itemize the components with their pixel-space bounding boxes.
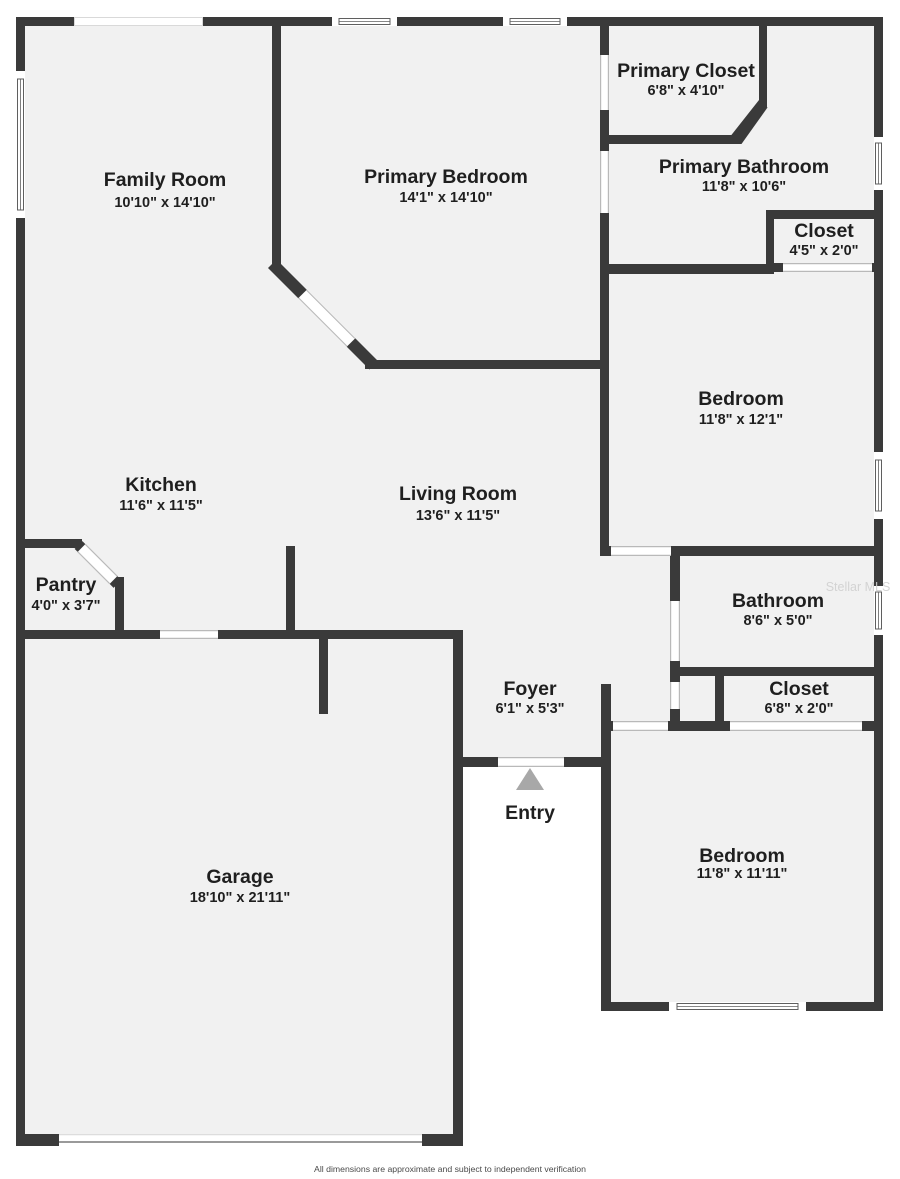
svg-text:Garage: Garage — [206, 866, 273, 888]
svg-text:Bedroom: Bedroom — [698, 388, 784, 410]
svg-text:Kitchen: Kitchen — [125, 474, 197, 496]
svg-text:10'10" x 14'10": 10'10" x 14'10" — [114, 195, 215, 211]
svg-text:Stellar MLS: Stellar MLS — [826, 580, 891, 594]
svg-text:8'6" x 5'0": 8'6" x 5'0" — [743, 613, 812, 629]
svg-text:11'8" x 10'6": 11'8" x 10'6" — [702, 179, 786, 195]
svg-text:Primary Bedroom: Primary Bedroom — [364, 166, 528, 188]
svg-text:11'8" x 12'1": 11'8" x 12'1" — [699, 412, 783, 428]
svg-text:Primary Closet: Primary Closet — [617, 60, 755, 82]
svg-text:13'6" x 11'5": 13'6" x 11'5" — [416, 508, 500, 524]
svg-text:11'6" x 11'5": 11'6" x 11'5" — [119, 498, 203, 514]
svg-text:4'5" x 2'0": 4'5" x 2'0" — [789, 243, 858, 259]
svg-text:All dimensions are approximate: All dimensions are approximate and subje… — [314, 1164, 586, 1174]
svg-text:Bathroom: Bathroom — [732, 590, 824, 612]
svg-text:Family Room: Family Room — [104, 169, 226, 191]
svg-text:Living Room: Living Room — [399, 483, 517, 505]
svg-text:6'8" x 2'0": 6'8" x 2'0" — [764, 701, 833, 717]
svg-text:6'8" x 4'10": 6'8" x 4'10" — [647, 83, 724, 99]
svg-text:Pantry: Pantry — [36, 574, 97, 596]
svg-text:14'1" x 14'10": 14'1" x 14'10" — [399, 190, 492, 206]
svg-text:Foyer: Foyer — [503, 678, 557, 700]
svg-text:Primary Bathroom: Primary Bathroom — [659, 156, 829, 178]
svg-text:4'0" x 3'7": 4'0" x 3'7" — [31, 598, 100, 614]
svg-text:Closet: Closet — [769, 678, 829, 700]
svg-text:6'1" x 5'3": 6'1" x 5'3" — [495, 701, 564, 717]
svg-text:Entry: Entry — [505, 802, 555, 824]
svg-text:18'10" x 21'11": 18'10" x 21'11" — [190, 890, 290, 906]
svg-text:Bedroom: Bedroom — [699, 845, 785, 867]
svg-text:Closet: Closet — [794, 220, 854, 242]
svg-text:11'8" x 11'11": 11'8" x 11'11" — [697, 866, 788, 882]
